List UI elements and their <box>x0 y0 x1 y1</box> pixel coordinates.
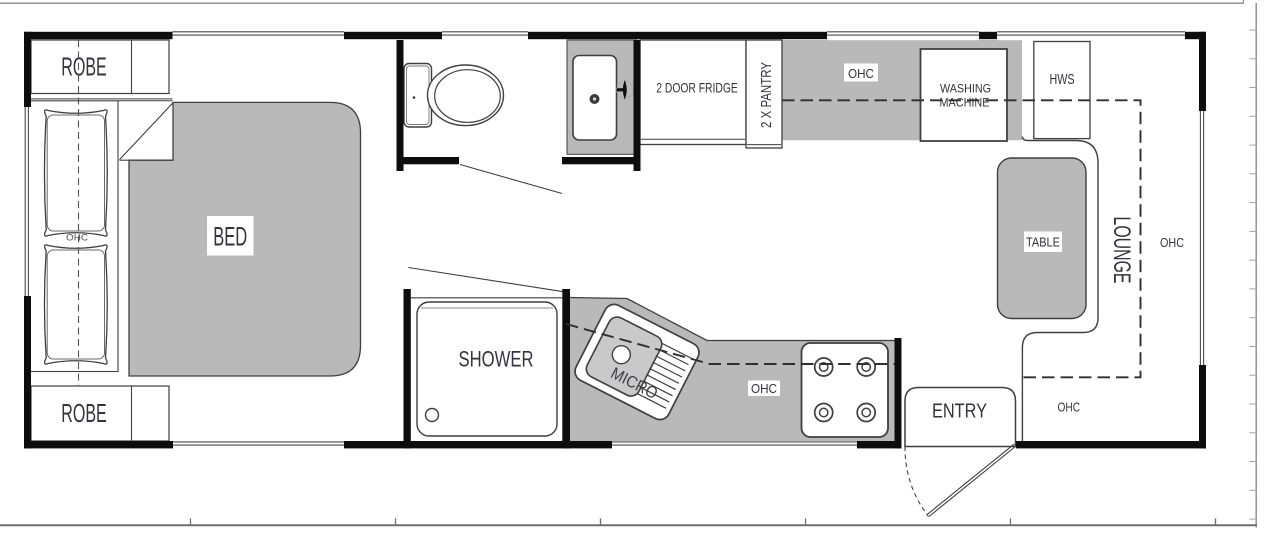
svg-text:TABLE: TABLE <box>1026 235 1060 250</box>
svg-text:OHC: OHC <box>1058 401 1081 415</box>
svg-text:OHC: OHC <box>848 66 874 81</box>
svg-text:HWS: HWS <box>1050 71 1075 88</box>
svg-text:WASHING: WASHING <box>940 82 991 96</box>
svg-text:OHC: OHC <box>751 382 777 396</box>
svg-text:OHC: OHC <box>1160 236 1184 250</box>
svg-text:SHOWER: SHOWER <box>459 346 534 371</box>
svg-text:ROBE: ROBE <box>61 52 107 82</box>
svg-text:BED: BED <box>213 222 247 252</box>
svg-text:2 DOOR FRIDGE: 2 DOOR FRIDGE <box>656 80 738 96</box>
svg-text:2 X PANTRY: 2 X PANTRY <box>758 62 775 128</box>
svg-text:MACHINE: MACHINE <box>940 96 990 110</box>
svg-text:LOUNGE: LOUNGE <box>1108 217 1135 284</box>
svg-text:ROBE: ROBE <box>61 398 107 428</box>
svg-text:OHC: OHC <box>66 232 88 243</box>
svg-text:ENTRY: ENTRY <box>932 401 987 423</box>
